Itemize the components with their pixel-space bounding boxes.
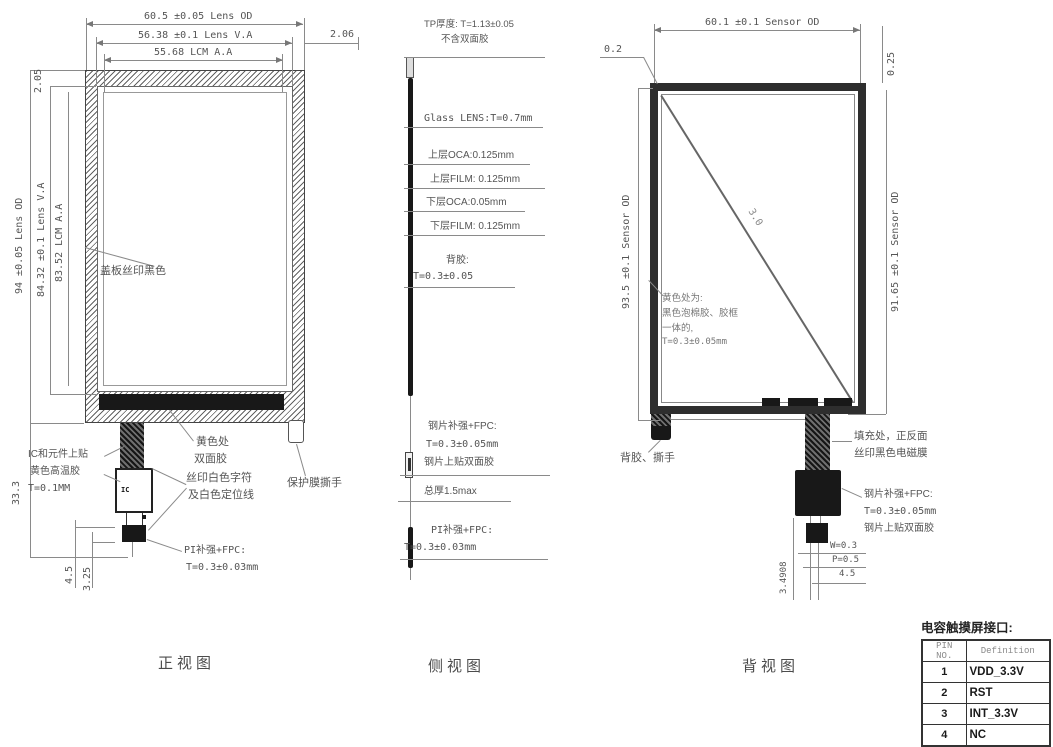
leader-line bbox=[400, 475, 550, 476]
pin-definition: RST bbox=[966, 683, 1050, 704]
side-stack-bar bbox=[408, 78, 413, 396]
ext-line bbox=[798, 553, 866, 554]
dim-line bbox=[305, 43, 358, 44]
front-protect-tab bbox=[288, 420, 304, 443]
ext-line bbox=[812, 583, 866, 584]
back-foam-label-2: 黑色泡棉胶、胶框 bbox=[662, 309, 738, 319]
dim-line bbox=[96, 43, 292, 44]
side-tp-thickness-1: TP厚度: T=1.13±0.05 bbox=[424, 20, 514, 30]
back-fill-label-2: 丝印黑色电磁膜 bbox=[854, 448, 928, 460]
pin-number: 3 bbox=[922, 704, 966, 725]
dim-w: W=0.3 bbox=[830, 542, 857, 552]
ic-chip-label: IC bbox=[121, 486, 129, 494]
ext-line bbox=[282, 54, 283, 92]
dim-lcm-aa-height: 83.52 LCM A.A bbox=[54, 204, 65, 282]
pin-definition: NC bbox=[966, 725, 1050, 746]
back-foam-label-3: 一体的, bbox=[662, 324, 693, 334]
back-fpc-tail-line bbox=[818, 543, 819, 600]
dim-offset-right: 2.06 bbox=[330, 29, 354, 40]
label-silk-1: 丝印白色字符 bbox=[186, 472, 252, 484]
side-glass-label: Glass LENS:T=0.7mm bbox=[424, 113, 532, 124]
dim-line bbox=[654, 30, 860, 31]
back-fpc-tail-line bbox=[810, 543, 811, 600]
table-row: 3 INT_3.3V bbox=[922, 704, 1050, 725]
front-fpc-neck-dot bbox=[142, 515, 146, 519]
dim-p: P=0.5 bbox=[832, 556, 859, 566]
pin-number: 1 bbox=[922, 662, 966, 683]
dim-sensor-od-right: 91.65 ±0.1 Sensor OD bbox=[890, 192, 901, 312]
dim-line bbox=[638, 88, 639, 420]
dim-line bbox=[793, 518, 794, 600]
pin-table-block: 电容触摸屏接口: PIN NO. Definition 1 VDD_3.3V 2… bbox=[921, 617, 1051, 747]
back-fpc-stem bbox=[805, 414, 830, 470]
label-silk-2: 及白色定位线 bbox=[188, 489, 254, 501]
ext-line bbox=[75, 527, 115, 528]
dim-line bbox=[86, 24, 303, 25]
label-cover-silk: 盖板丝印黑色 bbox=[100, 265, 166, 277]
front-fpc-end-block bbox=[122, 525, 146, 542]
dim-lens-va-height: 84.32 ±0.1 Lens V.A bbox=[36, 183, 47, 297]
dim-tail-a: 4.5 bbox=[64, 566, 75, 584]
ext-line bbox=[30, 423, 84, 424]
side-pi-label-2: T=0.3±0.03mm bbox=[404, 542, 476, 553]
side-steel-label-1: 钢片补强+FPC: bbox=[428, 421, 497, 432]
ext-line bbox=[292, 37, 293, 86]
dim-lens-od-height: 94 ±0.05 Lens OD bbox=[14, 198, 25, 294]
back-steel-label-3: 钢片上贴双面胶 bbox=[864, 523, 934, 534]
side-oca-top-label: 上层OCA:0.125mm bbox=[428, 150, 514, 161]
leader-line bbox=[152, 468, 187, 485]
dim-45: 4.5 bbox=[839, 570, 855, 580]
back-connector-pad bbox=[788, 398, 818, 406]
ext-line bbox=[638, 420, 660, 421]
back-fpc-neck-line bbox=[810, 516, 811, 523]
leader-line bbox=[842, 488, 862, 498]
back-steel-label-1: 钢片补强+FPC: bbox=[864, 489, 933, 500]
pin-definition: INT_3.3V bbox=[966, 704, 1050, 725]
leader-line bbox=[398, 501, 511, 502]
pin-table-header-def: Definition bbox=[966, 640, 1050, 662]
leader-line bbox=[404, 235, 545, 236]
leader-line bbox=[832, 441, 852, 442]
dim-lens-va-width: 56.38 ±0.1 Lens V.A bbox=[138, 30, 252, 41]
back-adhesive-tab bbox=[651, 414, 671, 440]
side-fpc-line bbox=[410, 568, 411, 580]
dim-tail-b: 3.25 bbox=[82, 567, 93, 591]
front-fpc-end-line bbox=[132, 542, 133, 557]
leader-line bbox=[147, 539, 182, 552]
leader-line bbox=[643, 57, 658, 84]
side-total-label: 总厚1.5max bbox=[424, 486, 477, 497]
label-pi-2: T=0.3±0.03mm bbox=[186, 562, 258, 573]
dim-left-offset: 0.2 bbox=[604, 44, 622, 55]
side-adhesive-label-1: 背胶: bbox=[446, 255, 469, 266]
dim-line bbox=[886, 90, 887, 414]
table-row: 2 RST bbox=[922, 683, 1050, 704]
leader-line bbox=[404, 287, 515, 288]
dim-line bbox=[882, 26, 883, 83]
dim-349: 3.4908 bbox=[780, 561, 790, 594]
ext-line bbox=[96, 37, 97, 86]
side-steel-pad-core bbox=[408, 458, 411, 471]
pin-number: 2 bbox=[922, 683, 966, 704]
label-yellow-1: 黄色处 bbox=[196, 436, 229, 448]
ext-line bbox=[50, 394, 98, 395]
dim-line bbox=[600, 57, 644, 58]
dim-right-offset: 0.25 bbox=[886, 52, 897, 76]
ext-line bbox=[848, 414, 886, 415]
back-foam-label-1: 黄色处为: bbox=[662, 294, 703, 304]
side-fpc-line bbox=[410, 478, 411, 527]
leader-line bbox=[404, 127, 543, 128]
pin-table-header-row: PIN NO. Definition bbox=[922, 640, 1050, 662]
pin-number: 4 bbox=[922, 725, 966, 746]
side-steel-label-3: 钢片上贴双面胶 bbox=[424, 457, 494, 468]
pin-table-title: 电容触摸屏接口: bbox=[921, 617, 1051, 636]
edge-line bbox=[671, 419, 805, 420]
pin-table-header-pin: PIN NO. bbox=[922, 640, 966, 662]
label-ic-3: T=0.1MM bbox=[28, 483, 70, 494]
table-row: 1 VDD_3.3V bbox=[922, 662, 1050, 683]
side-view-title: 侧视图 bbox=[428, 655, 485, 676]
leader-line bbox=[148, 488, 187, 531]
dim-offset-top: 2.05 bbox=[33, 69, 44, 93]
label-ic-2: 黄色高温胶 bbox=[30, 466, 80, 477]
front-connector-bar bbox=[99, 394, 284, 410]
back-fpc-end-block bbox=[806, 523, 828, 543]
back-adhesive-tab-bottom bbox=[651, 426, 671, 440]
side-steel-label-2: T=0.3±0.05mm bbox=[426, 439, 498, 450]
dim-lens-od-width: 60.5 ±0.05 Lens OD bbox=[144, 11, 252, 22]
ext-line bbox=[304, 18, 305, 70]
tp-engineering-drawing: IC 60.5 ±0.05 Lens OD 56.38 ±0.1 Lens V.… bbox=[0, 0, 1053, 747]
dim-sensor-od-left: 93.5 ±0.1 Sensor OD bbox=[621, 195, 632, 309]
ext-line bbox=[50, 86, 96, 87]
leader-line bbox=[404, 188, 545, 189]
back-adhesive-label: 背胶、撕手 bbox=[620, 452, 675, 464]
dim-lcm-aa-width: 55.68 LCM A.A bbox=[154, 47, 232, 58]
ext-line bbox=[92, 542, 115, 543]
dim-line bbox=[50, 86, 51, 394]
back-connector-pad bbox=[762, 398, 780, 406]
leader-line bbox=[648, 440, 661, 453]
side-tp-thickness-2: 不含双面胶 bbox=[441, 35, 489, 45]
back-connector-pad bbox=[824, 398, 852, 406]
back-fpc-neck-line bbox=[820, 516, 821, 523]
ext-line bbox=[30, 557, 128, 558]
side-pi-label-1: PI补强+FPC: bbox=[431, 525, 493, 536]
label-yellow-2: 双面胶 bbox=[194, 453, 227, 465]
dim-line bbox=[75, 520, 76, 588]
side-film-top-label: 上层FILM: 0.125mm bbox=[430, 174, 520, 185]
side-oca-bot-label: 下层OCA:0.05mm bbox=[426, 197, 507, 208]
label-pi-1: PI补强+FPC: bbox=[184, 545, 246, 556]
ext-line bbox=[654, 24, 655, 83]
back-steel-label-2: T=0.3±0.05mm bbox=[864, 506, 936, 517]
label-protect-tab: 保护膜撕手 bbox=[287, 477, 342, 489]
pin-table: PIN NO. Definition 1 VDD_3.3V 2 RST 3 IN… bbox=[921, 639, 1051, 747]
back-view-title: 背视图 bbox=[742, 655, 799, 676]
side-glass-cap bbox=[406, 57, 414, 78]
front-ic-box: IC bbox=[115, 468, 153, 513]
leader-line bbox=[404, 164, 530, 165]
dim-sensor-od-width: 60.1 ±0.1 Sensor OD bbox=[705, 17, 819, 28]
ext-line bbox=[358, 37, 359, 50]
table-row: 4 NC bbox=[922, 725, 1050, 746]
leader-line bbox=[404, 57, 545, 58]
leader-line bbox=[404, 211, 525, 212]
ext-line bbox=[104, 54, 105, 92]
leader-line bbox=[400, 559, 548, 560]
leader-line bbox=[296, 444, 306, 476]
ext-line bbox=[860, 24, 861, 83]
side-adhesive-label-2: T=0.3±0.05 bbox=[413, 271, 473, 282]
back-fill-label-1: 填充处，正反面 bbox=[854, 431, 928, 443]
dim-line bbox=[68, 92, 69, 386]
back-foam-label-4: T=0.3±0.05mm bbox=[662, 338, 727, 348]
side-film-bot-label: 下层FILM: 0.125mm bbox=[430, 221, 520, 232]
label-ic-1: IC和元件上贴 bbox=[28, 449, 88, 460]
front-view-title: 正视图 bbox=[158, 652, 215, 673]
back-fpc-block bbox=[795, 470, 841, 516]
ext-line bbox=[86, 18, 87, 70]
ext-line bbox=[638, 88, 653, 89]
dim-tail-total: 33.3 bbox=[11, 481, 22, 505]
front-aa-area bbox=[103, 92, 287, 386]
front-fpc-neck bbox=[126, 513, 143, 525]
pin-definition: VDD_3.3V bbox=[966, 662, 1050, 683]
ext-line bbox=[803, 567, 866, 568]
side-fpc-line bbox=[410, 396, 411, 452]
dim-line bbox=[104, 60, 283, 61]
